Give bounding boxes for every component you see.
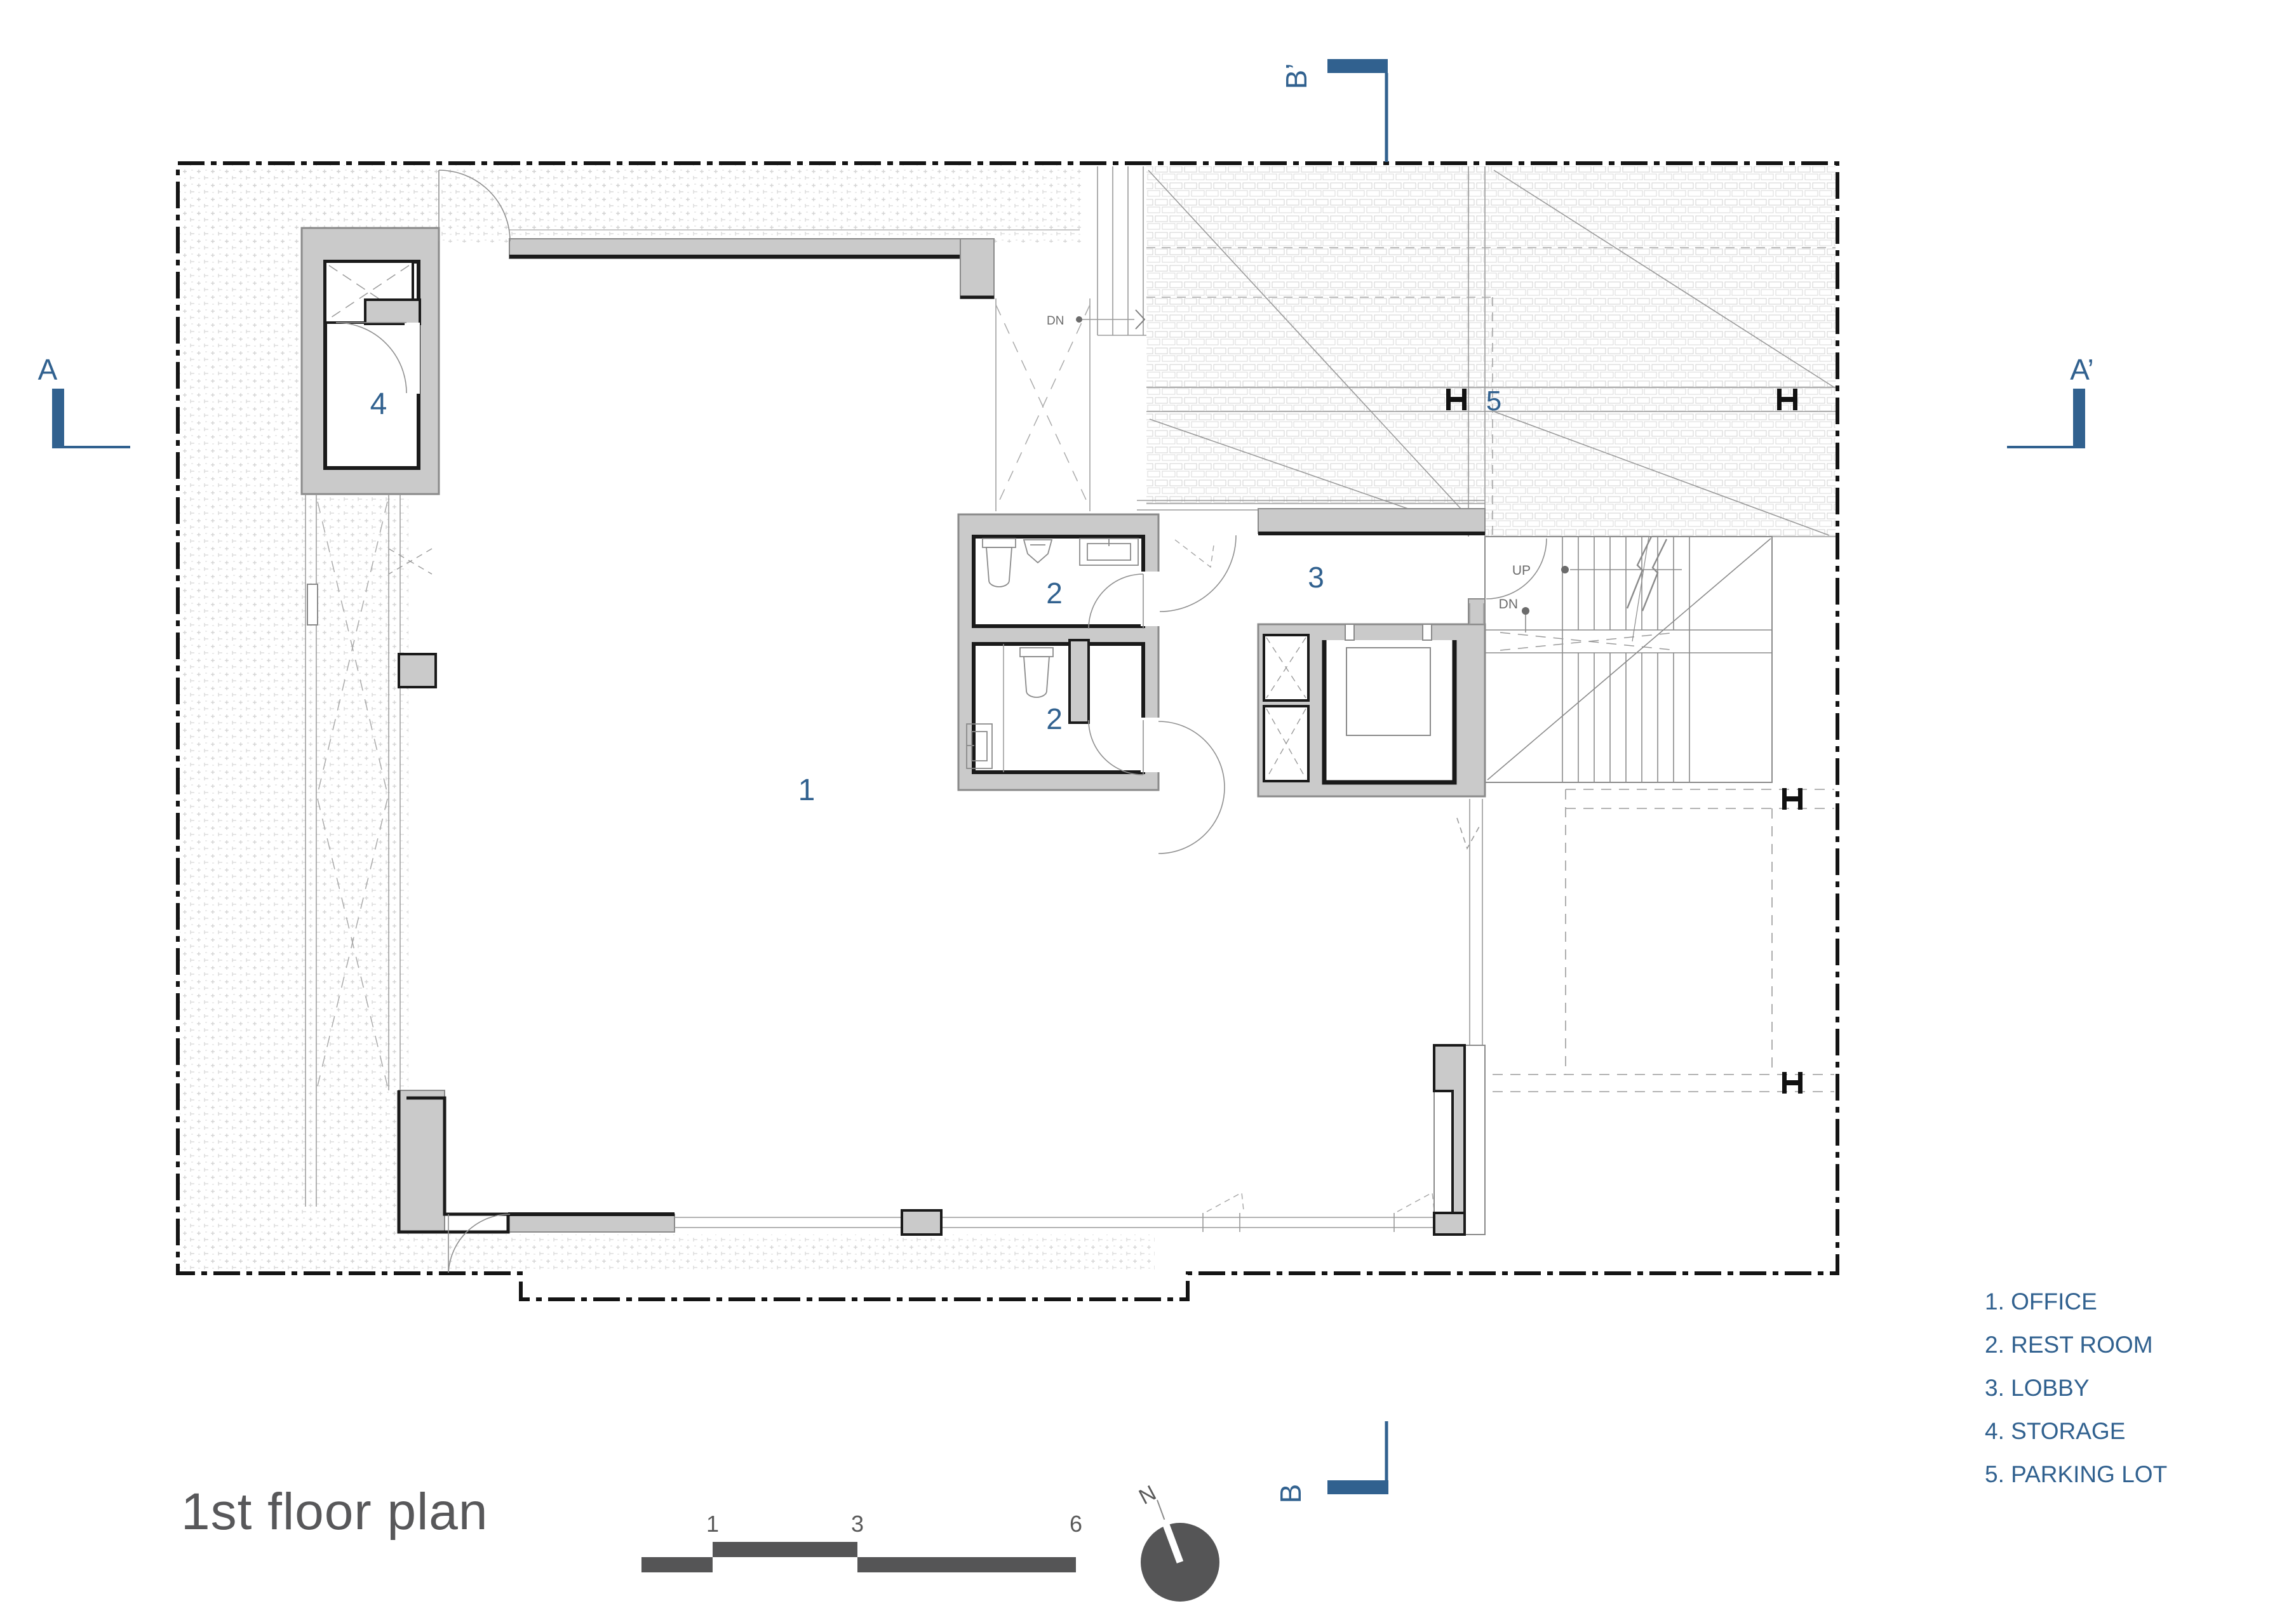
sheet-title: 1st floor plan	[181, 1483, 488, 1541]
scale-tick-1: 1	[706, 1511, 719, 1537]
legend-item-lobby: 3. LOBBY	[1985, 1375, 2090, 1401]
section-a-prime-label: A’	[2070, 353, 2094, 386]
ramp-dn-label: DN	[1047, 314, 1064, 328]
room-label-lobby: 3	[1308, 561, 1324, 594]
scale-tick-3: 3	[851, 1511, 864, 1537]
restroom-block	[958, 514, 1161, 790]
wall-pier	[399, 654, 436, 687]
room-label-restroom-upper: 2	[1046, 577, 1063, 610]
scale-tick-6: 6	[1070, 1511, 1082, 1537]
section-b-prime-label: B’	[1280, 64, 1313, 90]
legend-item-parking: 5. PARKING LOT	[1985, 1461, 2167, 1487]
room-label-office: 1	[798, 773, 816, 807]
room-label-storage: 4	[370, 387, 387, 421]
legend-item-office: 1. OFFICE	[1985, 1289, 2097, 1315]
legend-item-restroom: 2. REST ROOM	[1985, 1332, 2153, 1358]
room-label-parking: 5	[1486, 385, 1501, 417]
floor-plan-sheet: DN 4	[0, 0, 2296, 1620]
storage-room	[302, 228, 439, 494]
room-label-restroom-lower: 2	[1046, 702, 1063, 735]
section-b-label: B	[1274, 1484, 1307, 1504]
legend-item-storage: 4. STORAGE	[1985, 1418, 2125, 1444]
elevator-block	[1258, 624, 1485, 796]
stair-up-label: UP	[1512, 563, 1531, 578]
parking-lot-hatch	[1146, 166, 1836, 537]
stair-dn-label: DN	[1499, 597, 1518, 612]
section-a-label: A	[38, 353, 58, 386]
